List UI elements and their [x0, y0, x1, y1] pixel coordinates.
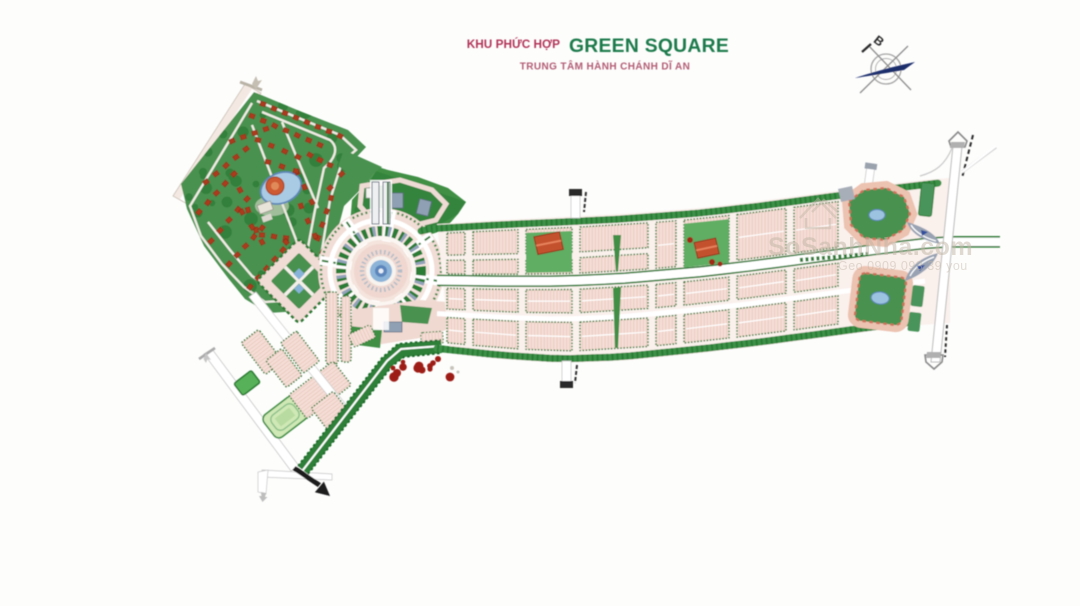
svg-text:GREEN SQUARE: GREEN SQUARE: [569, 36, 729, 57]
svg-text:B: B: [871, 33, 887, 50]
svg-text:SoSanhNha.com: SoSanhNha.com: [768, 233, 973, 261]
svg-text:Geo 0909 093 39 you: Geo 0909 093 39 you: [838, 259, 968, 273]
svg-text:TRUNG TÂM HÀNH CHÁNH DĨ AN: TRUNG TÂM HÀNH CHÁNH DĨ AN: [520, 60, 691, 73]
svg-text:KHU PHỨC HỢP: KHU PHỨC HỢP: [467, 37, 560, 51]
